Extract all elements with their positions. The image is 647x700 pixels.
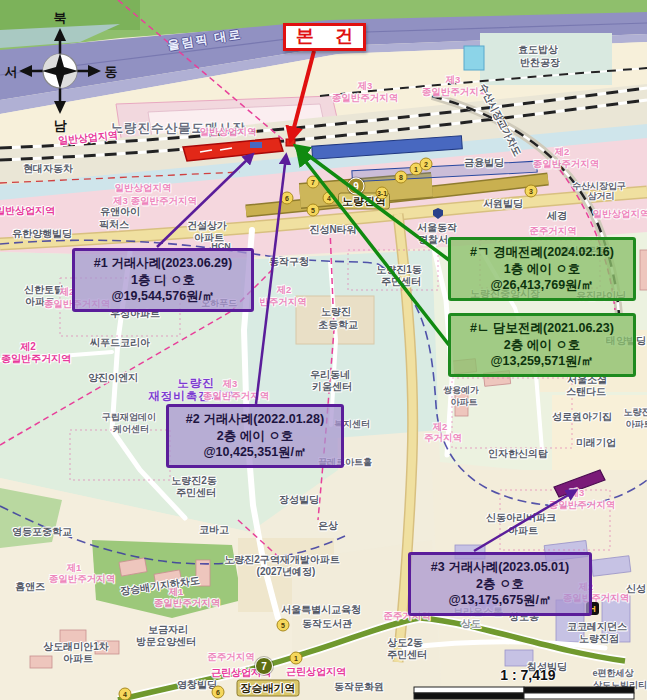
map-label: 주거지역: [424, 432, 462, 445]
map-label: 종일반주거지역: [332, 92, 399, 105]
map-label: 제3: [570, 487, 585, 500]
auction-unit: 1층 에이 ㅇ호: [453, 261, 631, 278]
map-label: 상도래미안1차: [43, 640, 109, 654]
compass-south: 남: [54, 118, 68, 133]
map-label: 반주거지역: [259, 296, 307, 309]
map-label: 보금자리: [148, 623, 188, 637]
map-label: 노량진1동: [376, 263, 422, 277]
map-label: 근린상업지역: [286, 665, 346, 679]
map-label: 주민센터: [176, 486, 216, 500]
map-label: 노량진2동: [171, 474, 217, 488]
line7-badge: 7: [255, 657, 273, 675]
subway-exit-badge: 1: [410, 163, 423, 176]
map-label: 서울특별시교육청: [281, 603, 361, 617]
map-label: 제2: [277, 284, 292, 297]
map-label: 케어센터: [113, 423, 149, 436]
transaction-1-unit: 1층 디 ㅇ호: [77, 272, 249, 289]
transaction-3-arrow: [474, 491, 575, 551]
map-label: 현대자동차: [23, 162, 73, 176]
subway-exit-badge: 6: [212, 686, 225, 699]
map-label: 상도노빌리티: [593, 679, 647, 692]
transaction-2-price: @10,425,351원/㎡: [171, 444, 339, 461]
map-label: 노량진점: [579, 632, 619, 646]
map-label: 제3: [223, 378, 238, 391]
map-label: 키움센터: [312, 380, 352, 394]
map-label: 제1: [169, 586, 184, 599]
map-label: 준주거지역: [529, 225, 577, 238]
map-label: 종일반주거지역: [203, 390, 270, 403]
transaction-3-title: #3 거래사례(2023.05.01): [413, 559, 587, 576]
map-label: 건설상가: [187, 219, 227, 233]
map-label: 일반상업지역: [115, 182, 172, 195]
transaction-3-unit: 2층 ㅇ호: [413, 576, 587, 593]
map-label: 재정비촉진지구: [148, 389, 236, 404]
map-label: 영등포중학교: [12, 525, 72, 539]
map-label: 쌍용예가: [443, 384, 479, 397]
map-label: 제2: [20, 340, 36, 354]
map-label: 유한양행빌딩: [12, 227, 72, 241]
map-label: 수산시장입구: [572, 180, 626, 193]
map-label: 동작구청: [269, 255, 309, 269]
map-label: 노량진: [177, 376, 215, 391]
map-label: 제3: [446, 74, 461, 87]
map-label: 신동아리버파크: [486, 511, 556, 525]
map-label: 제3 종일반주거지역: [113, 195, 197, 208]
map-label: 근린상업지역: [211, 666, 271, 680]
transaction-1-box: #1 거래사례(2023.06.29) 1층 디 ㅇ호 @19,544,576원…: [72, 248, 254, 312]
map-label: 신성: [626, 582, 646, 596]
map-label: 장승배기역: [237, 680, 300, 697]
map-label: 우리동네: [310, 368, 350, 382]
transaction-1-title: #1 거래사례(2023.06.29): [77, 255, 249, 272]
map-scale-ratio: 1 : 7,419: [468, 667, 588, 683]
map-label: 종일반주거지역: [154, 597, 221, 610]
map-label: 홈앤즈: [15, 580, 45, 594]
map-label: e편한세상: [592, 667, 633, 680]
map-label: 주민센터: [387, 648, 427, 662]
subway-exit-badge: 7: [307, 176, 320, 189]
map-label: 일반상업지역: [57, 128, 118, 148]
subway-exit-badge: 1: [290, 652, 303, 665]
map-label: 서울동작: [417, 221, 457, 235]
map-label: 코바고: [199, 523, 229, 537]
map-label: 효도밥상: [518, 43, 558, 57]
transaction-2-title: #2 거래사례(2022.01.28): [171, 411, 339, 428]
map-label: 준주거지역: [207, 651, 255, 664]
map-label: 성로원아기집: [552, 410, 612, 424]
subway-exit-badge: 4: [119, 688, 132, 700]
map-label: 종일반주거지역: [49, 573, 116, 586]
map-label: 수산시장고가차도: [476, 81, 525, 159]
map-label: 코코레지던스: [567, 620, 627, 634]
mortgage-arrow: [299, 153, 449, 345]
subway-exit-badge: 5: [277, 619, 290, 632]
auction-price: @26,413,769원/㎡: [453, 277, 631, 294]
map-label: 양진이엔지: [88, 371, 138, 385]
map-label: 노량진역: [338, 193, 390, 210]
subway-exit-badge: 5: [307, 204, 320, 217]
police-badge-icon: [433, 208, 443, 219]
map-label: 유앤아이: [100, 205, 140, 219]
map-label: (2027년예정): [257, 565, 316, 579]
map-label: 영창빌딩: [177, 678, 217, 692]
map-label: 종일반주거지역: [1, 352, 71, 366]
auction-arrow: [297, 147, 449, 260]
auction-precedent-box: #ㄱ 경매전례(2024.02.16) 1층 에이 ㅇ호 @26,413,769…: [448, 237, 636, 301]
map-label: 종일반주거지역: [549, 499, 616, 512]
map-label: 상도2동: [387, 636, 423, 650]
map-label: 은상: [318, 519, 338, 533]
subway-exit-badge: 6: [281, 192, 294, 205]
comparable-3-building-marker: [554, 470, 605, 497]
map-label: 일반상업지역: [0, 204, 55, 218]
map-label: 금융빌딩: [464, 156, 504, 170]
map-label: 아파트: [25, 295, 55, 309]
map-label: 제2: [555, 146, 570, 159]
map-label: 아파트: [194, 231, 224, 245]
subway-exit-badge: 3: [525, 185, 538, 198]
map-label: 올림픽 대로: [166, 26, 243, 55]
map-label: 미래기업: [576, 436, 616, 450]
subject-property-text: 본 건: [296, 26, 361, 46]
map-label: 인자한신의탑: [488, 447, 548, 461]
mortgage-price: @13,259,571원/㎡: [453, 353, 631, 370]
map-label: 초등학교: [318, 318, 358, 332]
transaction-2-unit: 2층 에이 ㅇ호: [171, 428, 339, 445]
subway-exit-badge: 4: [323, 192, 336, 205]
map-label: 일반상업지역: [593, 208, 647, 221]
map-label: 반찬공장: [520, 56, 560, 70]
map-label: 진성N타워: [309, 223, 356, 237]
map-label: 아파트: [63, 652, 93, 666]
transaction-3-price: @13,175,675원/㎡: [413, 592, 587, 609]
auction-title: #ㄱ 경매전례(2024.02.16): [453, 244, 631, 261]
map-label: 경찰서: [418, 233, 448, 247]
map-label: 아파트: [508, 524, 538, 538]
map-label: 구립재엄데이: [102, 411, 156, 424]
transaction-1-price: @19,544,576원/㎡: [77, 288, 249, 305]
map-label: 제2: [433, 421, 448, 434]
map-label: 노량진: [321, 305, 351, 319]
mortgage-precedent-box: #ㄴ 담보전례(2021.06.23) 2층 에이 ㅇ호 @13,259,571…: [448, 313, 636, 377]
subway-exit-badge: 3-1: [376, 187, 389, 200]
map-label: 일반상업지역: [200, 126, 257, 139]
map-label: 신한토탈: [24, 283, 64, 297]
map-label: 동작문화원: [334, 680, 384, 694]
subject-building-marker: [183, 138, 295, 161]
transaction-2-box: #2 거래사례(2022.01.28) 2층 에이 ㅇ호 @10,425,351…: [166, 404, 344, 468]
compass-east: 동: [105, 64, 118, 79]
transaction-3-box: #3 거래사례(2023.05.01) 2층 ㅇ호 @13,175,675원/㎡: [408, 552, 592, 616]
map-label: 장승배기지하차도: [119, 574, 200, 599]
map-label: 스탠다드: [566, 385, 606, 399]
map-label: 동작도서관: [302, 617, 352, 631]
subway-exit-badge: 2: [420, 158, 433, 171]
map-label: 삼거리: [588, 190, 615, 203]
map-label: 종일반주거지역: [533, 158, 600, 171]
map-label: 픽처스: [99, 218, 129, 232]
map-label: 노량진: [624, 406, 647, 419]
map-label: 주민센터: [381, 275, 421, 289]
map-label: 종일반주거지역: [422, 86, 489, 99]
map-label: 장성빌딩: [279, 493, 319, 507]
transaction-2-arrow: [256, 156, 286, 404]
map-label: 상도: [461, 617, 481, 631]
map-label: 노량진수산물도매시장: [111, 120, 246, 137]
subway-exit-badge: 8: [395, 171, 408, 184]
line9-badge: 9: [348, 178, 365, 195]
mortgage-title: #ㄴ 담보전례(2021.06.23): [453, 320, 631, 337]
mortgage-unit: 2층 에이 ㅇ호: [453, 337, 631, 354]
map-label: 세경: [547, 209, 567, 223]
subject-arrow: [291, 51, 314, 139]
compass-west: 서: [5, 64, 18, 79]
map-label: 아파트: [626, 418, 647, 431]
compass-north: 북: [54, 10, 67, 25]
map-label: 제3: [358, 80, 373, 93]
subject-property-label: 본 건: [283, 23, 366, 51]
map-label: 방문요양센터: [136, 635, 196, 649]
map-label: 노량진2구역재개발아파트: [224, 553, 340, 567]
map-label: 제1: [67, 562, 82, 575]
map-label: 아파트: [451, 396, 478, 409]
map-label: 서원빌딩: [483, 197, 523, 211]
map-label: 씨푸드코리아: [90, 336, 150, 350]
map-canvas: 올림픽 대로효도밥상반찬공장노량진수산물도매시장일반상업지역일반상업지역제3종일…: [0, 0, 647, 700]
transaction-1-arrow: [157, 155, 252, 247]
